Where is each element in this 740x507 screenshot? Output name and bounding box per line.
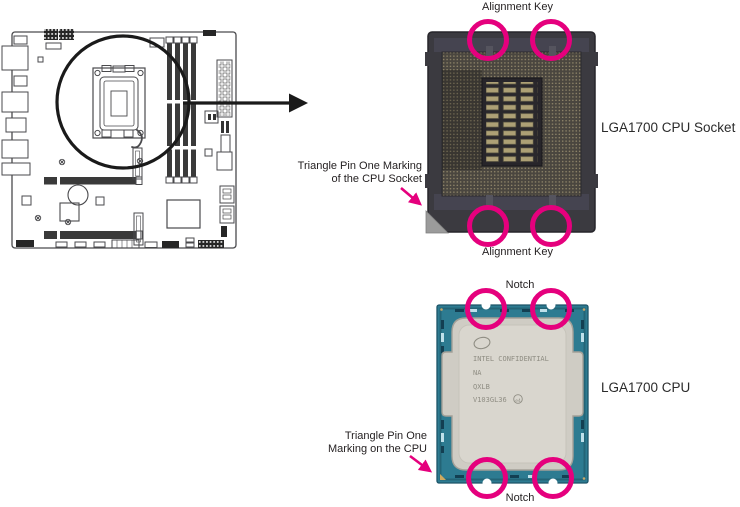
lga1700-socket-photo: [425, 32, 598, 233]
cpu-triangle-label-line1: Triangle Pin One: [297, 430, 427, 443]
atx-24pin-connector: [219, 62, 231, 116]
socket-title: LGA1700 CPU Socket: [601, 120, 735, 135]
socket-triangle-label: Triangle Pin One Marking of the CPU Sock…: [285, 160, 422, 185]
manual-illustration-page: INTEL CONFIDENTIAL NA QXLB V103GL36 e4: [0, 0, 740, 507]
socket-triangle-label-line2: of the CPU Socket: [285, 173, 422, 186]
socket-pin1-leader-arrow: [401, 188, 420, 204]
alignment-key-label-bottom: Alignment Key: [425, 246, 610, 259]
ihs-marking-line1: INTEL CONFIDENTIAL: [473, 355, 549, 363]
rear-io-ports: [2, 36, 30, 175]
notch-label-top: Notch: [430, 279, 610, 292]
cpu-title: LGA1700 CPU: [601, 380, 690, 395]
ihs-marking-line2: NA: [473, 369, 482, 377]
motherboard-diagram: [2, 29, 236, 248]
ihs-marking-line4: V103GL36: [473, 396, 507, 404]
cpu-pin1-leader-arrow: [410, 456, 430, 471]
lga1700-cpu-photo: INTEL CONFIDENTIAL NA QXLB V103GL36 e4: [437, 301, 588, 488]
cpu-triangle-label-line2: Marking on the CPU: [297, 443, 427, 456]
cpu-triangle-label: Triangle Pin One Marking on the CPU: [297, 430, 427, 455]
alignment-key-label-top: Alignment Key: [425, 1, 610, 14]
notch-label-bottom: Notch: [430, 492, 610, 505]
socket-triangle-label-line1: Triangle Pin One Marking: [285, 160, 422, 173]
board-outline: [12, 32, 236, 248]
ihs-marking-badge: e4: [515, 398, 521, 404]
ihs-marking-line3: QXLB: [473, 383, 490, 391]
